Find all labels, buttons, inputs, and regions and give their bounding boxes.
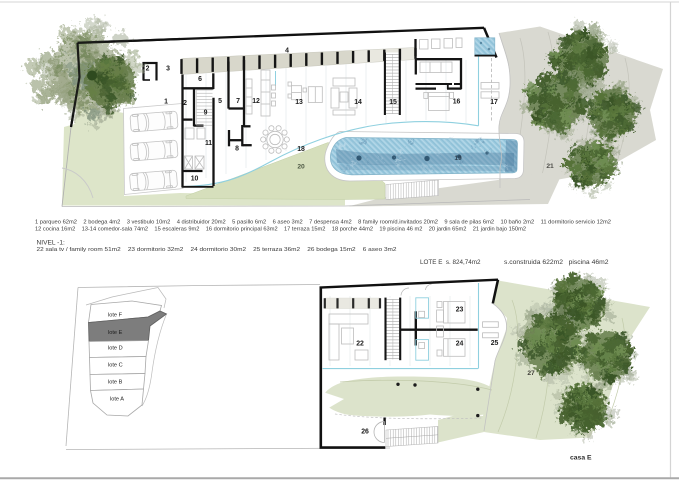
svg-text:11: 11 (205, 140, 212, 147)
svg-text:25: 25 (491, 340, 499, 347)
svg-text:27: 27 (527, 370, 535, 377)
svg-text:12: 12 (252, 98, 260, 105)
svg-text:26: 26 (361, 429, 369, 436)
svg-text:casa E: casa E (570, 455, 592, 462)
svg-text:8: 8 (235, 146, 239, 153)
svg-text:6: 6 (198, 76, 202, 83)
svg-text:lote C: lote C (108, 363, 123, 369)
svg-text:17: 17 (490, 99, 498, 106)
svg-text:22 sala tv / family room 51m2: 22 sala tv / family room 51m2 23 dormito… (37, 247, 397, 253)
svg-text:2: 2 (183, 100, 187, 107)
svg-text:20: 20 (297, 164, 305, 171)
svg-text:18: 18 (297, 146, 305, 153)
svg-text:24: 24 (456, 341, 464, 348)
svg-text:5: 5 (218, 98, 222, 105)
svg-text:lote E: lote E (108, 330, 123, 336)
svg-text:14: 14 (354, 99, 362, 106)
svg-text:NIVEL -1:: NIVEL -1: (37, 239, 66, 246)
svg-text:9: 9 (204, 110, 208, 117)
svg-text:3: 3 (166, 66, 170, 73)
svg-text:7: 7 (236, 98, 240, 105)
svg-text:lote F: lote F (108, 313, 123, 319)
svg-text:23: 23 (456, 307, 464, 314)
svg-text:lote B: lote B (108, 380, 123, 386)
svg-text:12 cocina 16m2 13-14 comedo: 12 cocina 16m2 13-14 comedor-sala 74m2 1… (35, 227, 526, 233)
svg-text:1 parqueo 62m2 2 bodega 4m2: 1 parqueo 62m2 2 bodega 4m2 3 vestibulo … (35, 220, 611, 226)
svg-text:13: 13 (295, 99, 303, 106)
svg-text:15: 15 (389, 99, 397, 106)
svg-text:LOTE E s. 824,74m2: LOTE E s. 824,74m2 (420, 259, 481, 266)
svg-text:16: 16 (453, 99, 461, 106)
svg-text:10: 10 (191, 176, 199, 183)
svg-text:4: 4 (285, 48, 289, 55)
svg-text:lote A: lote A (110, 397, 124, 403)
svg-text:s.construida 622m2 piscina 4: s.construida 622m2 piscina 46m2 (504, 259, 609, 266)
svg-text:2: 2 (146, 66, 150, 73)
svg-text:1: 1 (164, 99, 168, 106)
svg-text:lote D: lote D (108, 346, 123, 352)
svg-text:22: 22 (356, 341, 364, 348)
svg-text:19: 19 (454, 155, 462, 162)
svg-text:21: 21 (546, 163, 554, 170)
